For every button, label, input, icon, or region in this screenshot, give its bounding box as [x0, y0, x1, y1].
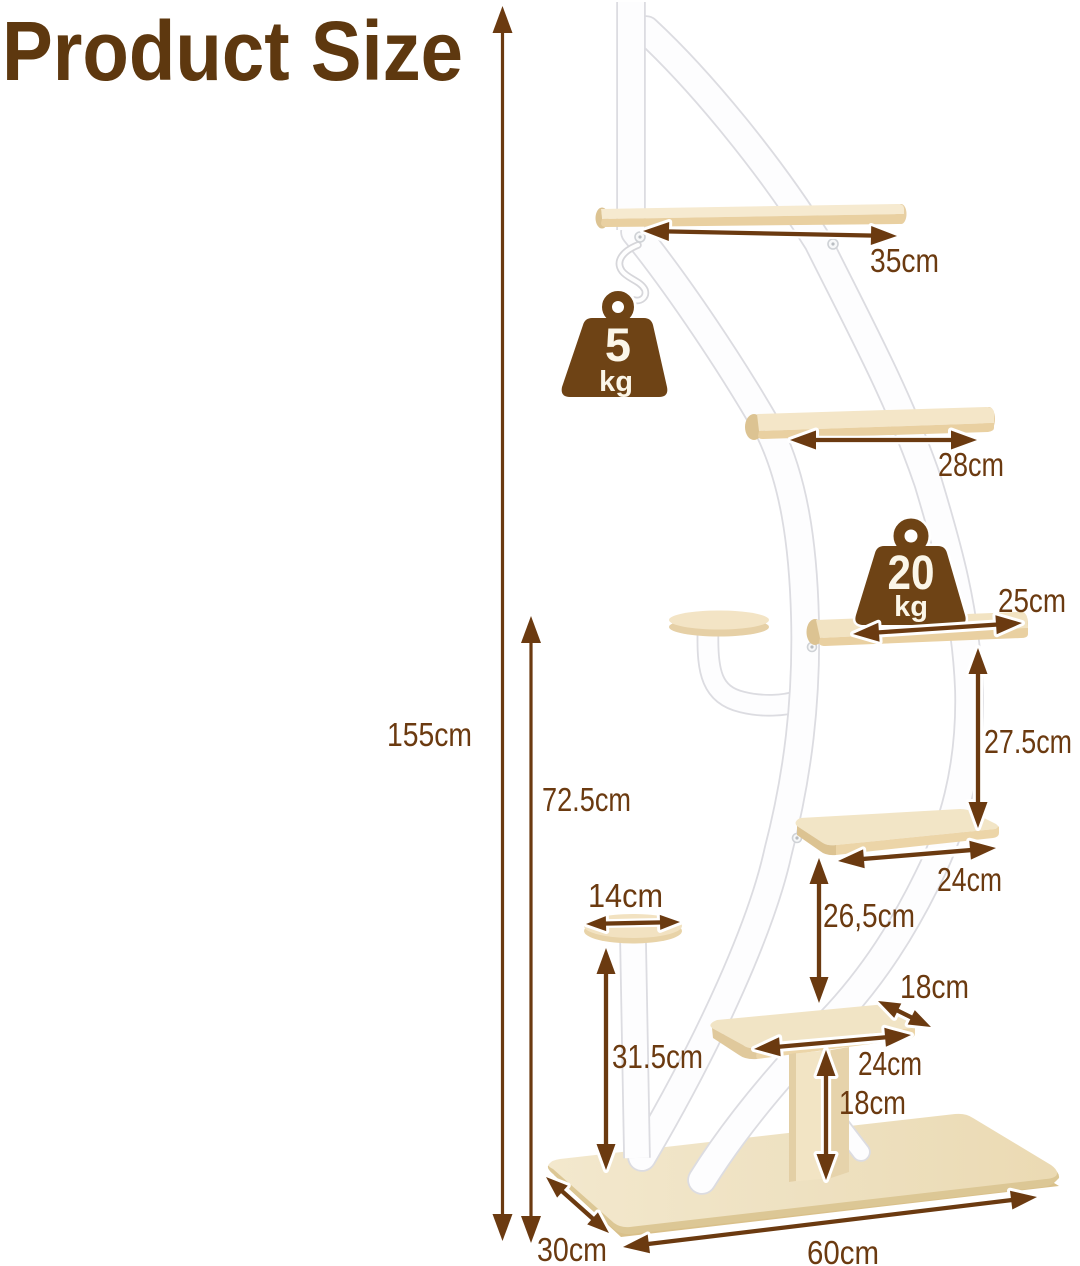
svg-text:155cm: 155cm — [387, 716, 472, 753]
svg-text:72.5cm: 72.5cm — [542, 781, 631, 818]
svg-text:5: 5 — [605, 318, 631, 371]
svg-text:24cm: 24cm — [858, 1045, 922, 1082]
svg-text:30cm: 30cm — [537, 1231, 607, 1266]
svg-text:25cm: 25cm — [998, 582, 1066, 619]
svg-text:35cm: 35cm — [870, 242, 939, 279]
svg-text:26,5cm: 26,5cm — [823, 897, 915, 934]
svg-text:60cm: 60cm — [807, 1234, 879, 1266]
svg-text:24cm: 24cm — [937, 861, 1002, 898]
svg-text:kg: kg — [599, 366, 633, 398]
svg-text:28cm: 28cm — [938, 446, 1004, 483]
svg-text:31.5cm: 31.5cm — [612, 1038, 703, 1075]
svg-text:kg: kg — [894, 591, 928, 623]
svg-text:14cm: 14cm — [588, 877, 663, 914]
svg-text:27.5cm: 27.5cm — [984, 723, 1072, 760]
svg-text:Product Size: Product Size — [2, 4, 463, 98]
svg-text:18cm: 18cm — [900, 968, 969, 1005]
svg-text:18cm: 18cm — [839, 1084, 906, 1121]
